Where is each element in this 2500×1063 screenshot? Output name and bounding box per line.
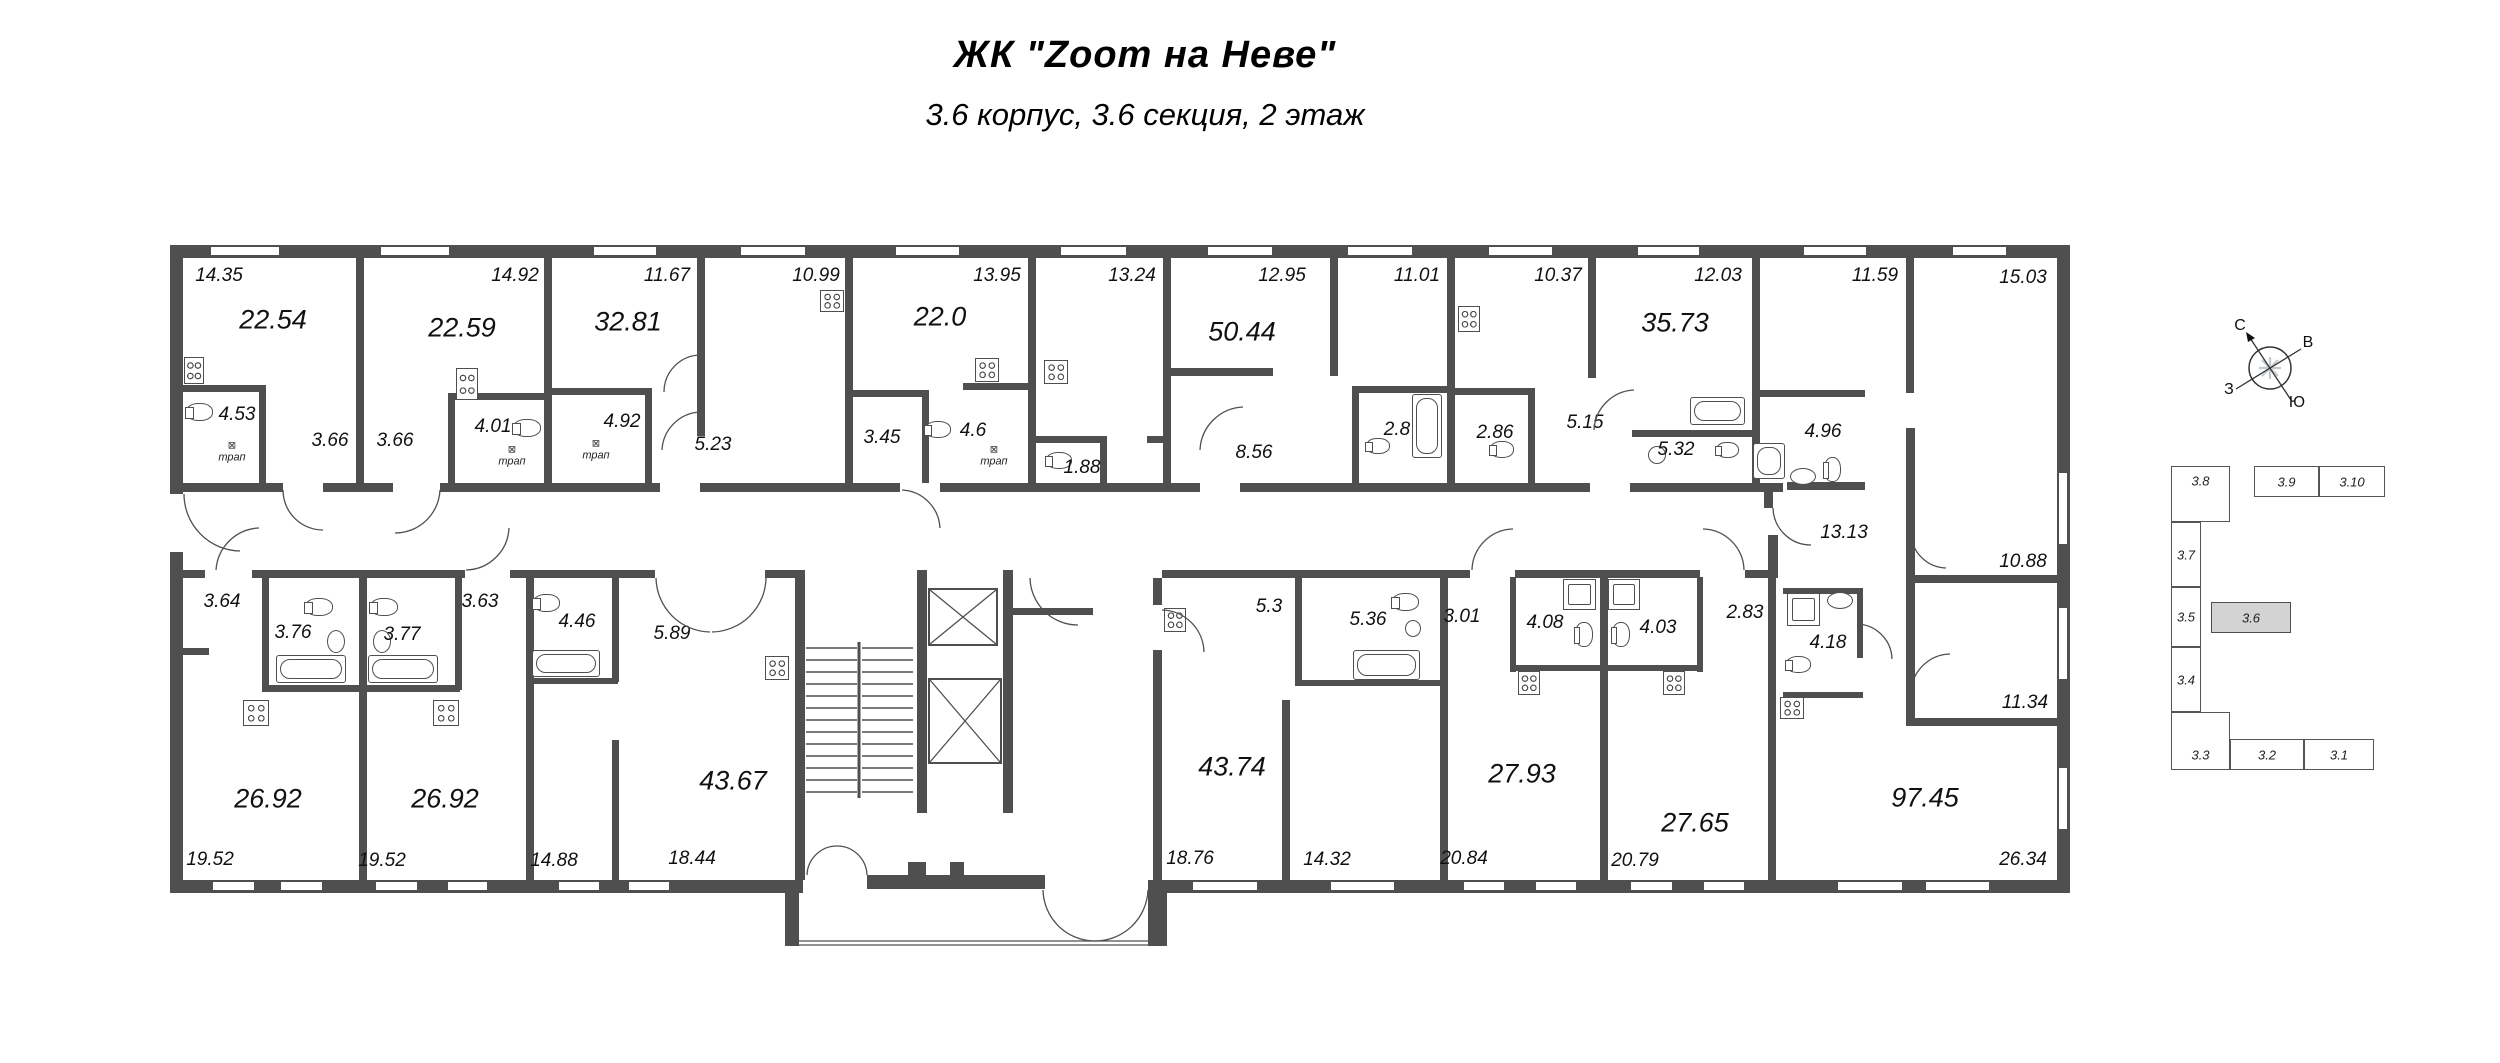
apartment-area-label: 26.92 bbox=[234, 784, 302, 815]
wall bbox=[867, 875, 1045, 889]
room-area-label: 4.46 bbox=[559, 611, 596, 633]
wall bbox=[1745, 570, 1772, 578]
tub-icon bbox=[1353, 650, 1420, 680]
drain-text: трап bbox=[582, 449, 609, 461]
stove-icon bbox=[184, 357, 204, 384]
stove-icon bbox=[1663, 671, 1685, 695]
apartment-area-label: 27.93 bbox=[1488, 759, 1556, 790]
wall bbox=[1906, 258, 1914, 393]
apartment-area-label: 27.65 bbox=[1661, 808, 1729, 839]
apartment-area-label: 22.0 bbox=[914, 302, 967, 333]
wall bbox=[1153, 650, 1162, 880]
room-area-label: 10.99 bbox=[792, 265, 840, 287]
drain-label: ⊠трап bbox=[980, 444, 1007, 467]
room-area-label: 5.15 bbox=[1567, 412, 1604, 434]
window bbox=[1952, 246, 2007, 256]
wall bbox=[259, 392, 266, 483]
toilet-icon bbox=[1786, 656, 1811, 673]
window bbox=[1192, 881, 1258, 891]
stove-icon bbox=[243, 700, 269, 726]
drain-label: ⊠трап bbox=[498, 444, 525, 467]
wall bbox=[1515, 570, 1700, 578]
room-area-label: 5.3 bbox=[1256, 596, 1282, 618]
room-area-label: 20.84 bbox=[1440, 848, 1488, 870]
room-area-label: 2.86 bbox=[1477, 422, 1514, 444]
minimap-section-label: 3.9 bbox=[2277, 474, 2295, 489]
drain-label: ⊠трап bbox=[582, 438, 609, 461]
room-area-label: 26.34 bbox=[1999, 849, 2047, 871]
wall bbox=[510, 570, 655, 578]
wall bbox=[612, 740, 619, 880]
room-area-label: 14.92 bbox=[491, 265, 539, 287]
window bbox=[447, 881, 488, 891]
room-area-label: 15.03 bbox=[1999, 267, 2047, 289]
room-area-label: 14.32 bbox=[1303, 849, 1351, 871]
stove-icon bbox=[765, 656, 789, 680]
wall bbox=[1100, 436, 1107, 483]
wall bbox=[1768, 578, 1776, 880]
room-area-label: 10.37 bbox=[1534, 265, 1582, 287]
apartment-area-label: 50.44 bbox=[1208, 317, 1276, 348]
window bbox=[280, 881, 323, 891]
drain-icon: ⊠ bbox=[980, 444, 1007, 455]
apartment-area-label: 35.73 bbox=[1641, 308, 1709, 339]
room-area-label: 10.88 bbox=[1999, 551, 2047, 573]
room-area-label: 4.6 bbox=[960, 420, 986, 442]
room-area-label: 19.52 bbox=[186, 849, 234, 871]
wall bbox=[363, 685, 460, 692]
sink-icon bbox=[1827, 592, 1853, 609]
wall bbox=[526, 578, 534, 880]
wall bbox=[183, 648, 209, 655]
stove-icon bbox=[1518, 671, 1540, 695]
room-area-label: 13.13 bbox=[1820, 522, 1868, 544]
wall bbox=[922, 390, 929, 483]
room-area-label: 5.23 bbox=[695, 434, 732, 456]
room-area-label: 2.83 bbox=[1727, 602, 1764, 624]
window bbox=[2058, 472, 2068, 545]
stove-icon bbox=[1044, 360, 1068, 384]
tub-icon bbox=[1753, 443, 1785, 479]
sink-icon bbox=[1405, 620, 1421, 637]
toilet-icon bbox=[1716, 442, 1739, 458]
toilet-icon bbox=[305, 598, 333, 616]
minimap-section-label: 3.5 bbox=[2177, 610, 2195, 625]
drain-label: ⊠трап bbox=[218, 440, 245, 463]
apartment-area-label: 22.59 bbox=[428, 313, 496, 344]
wall bbox=[359, 578, 367, 880]
wall bbox=[440, 483, 660, 492]
window bbox=[1925, 881, 1990, 891]
stove-icon bbox=[1780, 697, 1804, 719]
window bbox=[895, 246, 960, 256]
room-area-label: 13.95 bbox=[973, 265, 1021, 287]
room-area-label: 11.01 bbox=[1394, 265, 1440, 287]
wall bbox=[795, 570, 805, 880]
window bbox=[210, 246, 280, 256]
window bbox=[375, 881, 418, 891]
tub-icon bbox=[368, 655, 438, 683]
wall bbox=[1153, 578, 1162, 605]
stove-icon bbox=[975, 358, 999, 382]
toilet-icon bbox=[186, 403, 213, 421]
sink-icon bbox=[1790, 468, 1816, 485]
window bbox=[558, 881, 600, 891]
apartment-area-label: 22.54 bbox=[239, 305, 307, 336]
window bbox=[1837, 881, 1903, 891]
stove-icon bbox=[1164, 608, 1186, 632]
toilet-icon bbox=[1575, 622, 1593, 647]
wall bbox=[170, 552, 183, 893]
wall bbox=[612, 577, 619, 682]
wall bbox=[1915, 575, 2057, 583]
drain-icon: ⊠ bbox=[498, 444, 525, 455]
tub-icon bbox=[1412, 394, 1442, 458]
wall bbox=[170, 245, 183, 494]
wall bbox=[1632, 430, 1752, 437]
wall bbox=[1915, 718, 2057, 726]
wall bbox=[1528, 388, 1535, 483]
room-area-label: 3.45 bbox=[864, 427, 901, 449]
room-area-label: 14.35 bbox=[195, 265, 243, 287]
toilet-icon bbox=[1612, 622, 1630, 647]
wall bbox=[1906, 428, 1915, 726]
room-area-label: 3.66 bbox=[312, 430, 349, 452]
minimap-section-label: 3.7 bbox=[2177, 547, 2195, 562]
window bbox=[212, 881, 255, 891]
wall bbox=[1032, 436, 1107, 443]
sink-icon bbox=[327, 630, 345, 653]
floor-plan: 22.5422.5932.8122.050.4435.7326.9226.924… bbox=[0, 0, 2500, 1063]
window bbox=[2058, 607, 2068, 680]
wall bbox=[645, 388, 652, 483]
stove-icon bbox=[456, 368, 478, 400]
wall bbox=[1171, 368, 1273, 376]
room-area-label: 4.18 bbox=[1810, 632, 1847, 654]
window bbox=[1488, 246, 1553, 256]
room-area-label: 3.64 bbox=[204, 591, 241, 613]
drain-text: трап bbox=[218, 451, 245, 463]
drain-icon: ⊠ bbox=[218, 440, 245, 451]
wall bbox=[548, 388, 648, 395]
wall bbox=[950, 862, 964, 876]
shower-icon bbox=[1608, 579, 1640, 610]
wall bbox=[1148, 880, 1167, 946]
wall bbox=[851, 390, 926, 397]
toilet-icon bbox=[1824, 457, 1841, 482]
room-area-label: 3.66 bbox=[377, 430, 414, 452]
wall bbox=[183, 483, 283, 492]
wall bbox=[1240, 483, 1590, 492]
wall bbox=[1162, 570, 1470, 578]
wall bbox=[785, 880, 799, 946]
tub-icon bbox=[276, 655, 346, 683]
minimap-section-label: 3.1 bbox=[2330, 747, 2348, 762]
wall bbox=[1352, 386, 1359, 483]
room-area-label: 4.01 bbox=[475, 416, 512, 438]
window bbox=[740, 246, 806, 256]
room-area-label: 12.03 bbox=[1694, 265, 1742, 287]
wall bbox=[700, 483, 900, 492]
room-area-label: 4.08 bbox=[1527, 612, 1564, 634]
room-area-label: 18.76 bbox=[1166, 848, 1214, 870]
window bbox=[1535, 881, 1577, 891]
minimap-section-label: 3.3 bbox=[2191, 748, 2209, 763]
toilet-icon bbox=[513, 419, 541, 437]
room-area-label: 18.44 bbox=[668, 848, 716, 870]
window bbox=[593, 246, 657, 256]
wall bbox=[1352, 386, 1447, 393]
wall bbox=[183, 570, 205, 578]
room-area-label: 3.77 bbox=[384, 624, 421, 646]
minimap-section-label: 3.6 bbox=[2242, 610, 2260, 625]
room-area-label: 3.01 bbox=[1444, 606, 1481, 628]
window bbox=[1703, 881, 1745, 891]
room-area-label: 5.36 bbox=[1350, 609, 1387, 631]
tub-icon bbox=[1690, 397, 1745, 425]
toilet-icon bbox=[1392, 593, 1419, 611]
room-area-label: 4.03 bbox=[1640, 617, 1677, 639]
apartment-area-label: 43.67 bbox=[699, 766, 767, 797]
window bbox=[1630, 881, 1673, 891]
wall bbox=[845, 258, 853, 483]
room-area-label: 5.32 bbox=[1658, 439, 1695, 461]
stove-icon bbox=[820, 290, 844, 312]
wall bbox=[1447, 258, 1455, 483]
wall bbox=[1003, 570, 1013, 813]
wall bbox=[448, 393, 455, 483]
wall bbox=[1588, 258, 1596, 378]
wall bbox=[323, 483, 393, 492]
window bbox=[1803, 246, 1867, 256]
drain-text: трап bbox=[498, 455, 525, 467]
wall bbox=[262, 577, 269, 690]
room-area-label: 3.63 bbox=[462, 591, 499, 613]
window bbox=[1060, 246, 1127, 256]
window bbox=[2058, 767, 2068, 830]
room-area-label: 14.88 bbox=[530, 850, 578, 872]
wall bbox=[1857, 588, 1863, 658]
minimap-section-label: 3.8 bbox=[2191, 474, 2209, 489]
wall bbox=[1295, 680, 1440, 686]
room-area-label: 4.53 bbox=[219, 404, 256, 426]
apartment-area-label: 97.45 bbox=[1891, 783, 1959, 814]
wall bbox=[1752, 390, 1865, 397]
apartment-area-label: 26.92 bbox=[411, 784, 479, 815]
window bbox=[1347, 246, 1413, 256]
room-area-label: 12.95 bbox=[1258, 265, 1306, 287]
wall bbox=[356, 258, 364, 483]
room-area-label: 3.76 bbox=[275, 622, 312, 644]
minimap-section-label: 3.4 bbox=[2177, 672, 2195, 687]
minimap-section-label: 3.2 bbox=[2258, 747, 2276, 762]
wall bbox=[1028, 258, 1036, 483]
drain-icon: ⊠ bbox=[582, 438, 609, 449]
wall bbox=[252, 570, 465, 578]
wall bbox=[262, 685, 359, 692]
wall bbox=[1013, 608, 1093, 615]
tub-icon bbox=[532, 650, 600, 677]
window bbox=[1330, 881, 1395, 891]
wall bbox=[963, 383, 1032, 390]
wall bbox=[530, 678, 618, 684]
room-area-label: 8.56 bbox=[1236, 442, 1273, 464]
window bbox=[1463, 881, 1505, 891]
stove-icon bbox=[433, 700, 459, 726]
wall bbox=[1630, 483, 1783, 492]
wall bbox=[908, 862, 926, 876]
wall bbox=[1147, 436, 1171, 443]
room-area-label: 4.92 bbox=[604, 411, 641, 433]
wall bbox=[1447, 388, 1535, 395]
apartment-area-label: 32.81 bbox=[594, 307, 662, 338]
room-area-label: 11.59 bbox=[1852, 265, 1898, 287]
room-area-label: 13.24 bbox=[1108, 265, 1156, 287]
toilet-icon bbox=[370, 598, 398, 616]
wall bbox=[1697, 577, 1703, 672]
wall bbox=[1282, 700, 1290, 880]
room-area-label: 4.96 bbox=[1805, 421, 1842, 443]
wall bbox=[697, 258, 705, 436]
room-area-label: 19.52 bbox=[358, 850, 406, 872]
toilet-icon bbox=[533, 594, 560, 612]
room-area-label: 11.67 bbox=[644, 265, 690, 287]
wall bbox=[544, 258, 552, 483]
wall bbox=[940, 483, 1200, 492]
room-area-label: 5.89 bbox=[654, 623, 691, 645]
shower-icon bbox=[1563, 579, 1596, 610]
wall bbox=[1330, 258, 1338, 376]
minimap-section-label: 3.10 bbox=[2339, 474, 2364, 489]
room-area-label: 11.34 bbox=[2002, 692, 2048, 714]
window bbox=[1637, 246, 1700, 256]
apartment-area-label: 43.74 bbox=[1198, 752, 1266, 783]
toilet-icon bbox=[925, 421, 951, 438]
room-area-label: 1.88 bbox=[1064, 457, 1101, 479]
wall bbox=[183, 385, 266, 392]
wall bbox=[917, 570, 927, 813]
wall bbox=[1295, 577, 1302, 686]
elevator-shaft bbox=[928, 678, 1002, 764]
elevator-shaft bbox=[928, 588, 998, 646]
wall bbox=[1510, 577, 1516, 672]
wall bbox=[765, 570, 795, 578]
stove-icon bbox=[1458, 306, 1480, 332]
wall bbox=[1163, 258, 1171, 483]
room-area-label: 2.8 bbox=[1384, 419, 1410, 441]
shower-icon bbox=[1787, 593, 1820, 626]
floor-plan-page: ЖК "Zoom на Неве" 3.6 корпус, 3.6 секция… bbox=[0, 0, 2500, 1063]
wall bbox=[1600, 578, 1608, 880]
window bbox=[628, 881, 670, 891]
window bbox=[380, 246, 450, 256]
drain-text: трап bbox=[980, 455, 1007, 467]
window bbox=[1207, 246, 1273, 256]
room-area-label: 20.79 bbox=[1611, 850, 1659, 872]
